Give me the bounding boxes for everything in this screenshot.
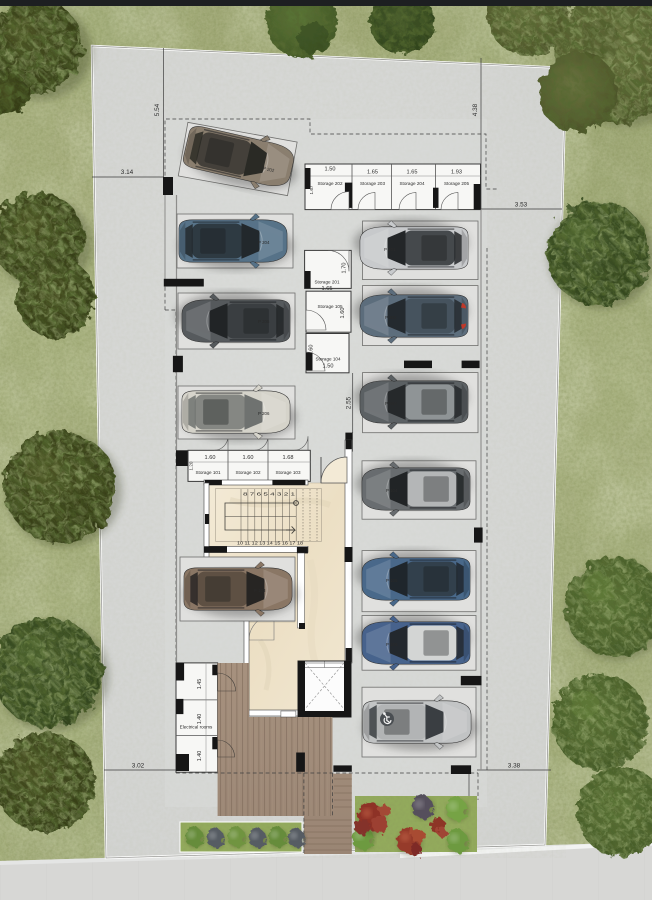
svg-text:10 11 12 13 14 15 16 17 18: 10 11 12 13 14 15 16 17 18	[237, 541, 304, 546]
svg-text:1.70: 1.70	[342, 263, 348, 274]
svg-text:4.38: 4.38	[472, 103, 479, 116]
svg-text:3.14: 3.14	[121, 169, 134, 176]
svg-text:1.50: 1.50	[325, 167, 336, 173]
svg-text:3.38: 3.38	[508, 763, 521, 770]
svg-text:1.60: 1.60	[340, 308, 346, 319]
svg-text:Storage 104: Storage 104	[315, 357, 340, 362]
svg-text:Storage 103: Storage 103	[275, 470, 300, 475]
svg-text:3.53: 3.53	[515, 202, 528, 209]
svg-text:P 302: P 302	[385, 315, 397, 320]
svg-text:1.45: 1.45	[197, 679, 203, 690]
svg-text:P 104: P 104	[386, 488, 398, 493]
svg-text:1.50: 1.50	[323, 364, 334, 370]
svg-text:Storage 101: Storage 101	[195, 470, 220, 475]
svg-text:1.67: 1.67	[309, 185, 314, 194]
svg-text:Storage 204: Storage 204	[399, 181, 424, 186]
svg-text:Storage 205: Storage 205	[444, 181, 469, 186]
svg-text:Storage 201: Storage 201	[314, 280, 339, 285]
svg-text:P 105: P 105	[386, 578, 398, 583]
svg-text:P 206: P 206	[258, 411, 270, 416]
svg-text:1.65: 1.65	[407, 170, 418, 176]
svg-text:1.40: 1.40	[197, 714, 203, 725]
svg-text:1.60: 1.60	[205, 455, 216, 461]
svg-text:P 103: P 103	[254, 588, 266, 593]
svg-text:1.68: 1.68	[283, 455, 294, 461]
svg-text:P 204: P 204	[258, 240, 270, 245]
svg-text:Storage 102: Storage 102	[235, 470, 260, 475]
svg-text:Storage 203: Storage 203	[360, 181, 385, 186]
svg-text:5.54: 5.54	[154, 103, 161, 116]
svg-text:P 201: P 201	[384, 247, 396, 252]
svg-text:Electrical rooms: Electrical rooms	[180, 725, 213, 730]
svg-text:1.93: 1.93	[451, 170, 462, 176]
svg-text:1.20: 1.20	[189, 461, 194, 470]
svg-text:Storage 202: Storage 202	[317, 181, 342, 186]
svg-text:3.02: 3.02	[132, 763, 145, 770]
svg-text:8 7 6 5 4 3 2 1: 8 7 6 5 4 3 2 1	[243, 492, 296, 497]
svg-text:P 205: P 205	[258, 319, 270, 324]
svg-text:1.60: 1.60	[243, 455, 254, 461]
svg-text:1.65: 1.65	[367, 170, 378, 176]
svg-text:2.55: 2.55	[346, 396, 353, 409]
svg-text:P 106: P 106	[386, 642, 398, 647]
svg-text:P 303: P 303	[385, 401, 397, 406]
svg-text:1.40: 1.40	[197, 751, 203, 762]
